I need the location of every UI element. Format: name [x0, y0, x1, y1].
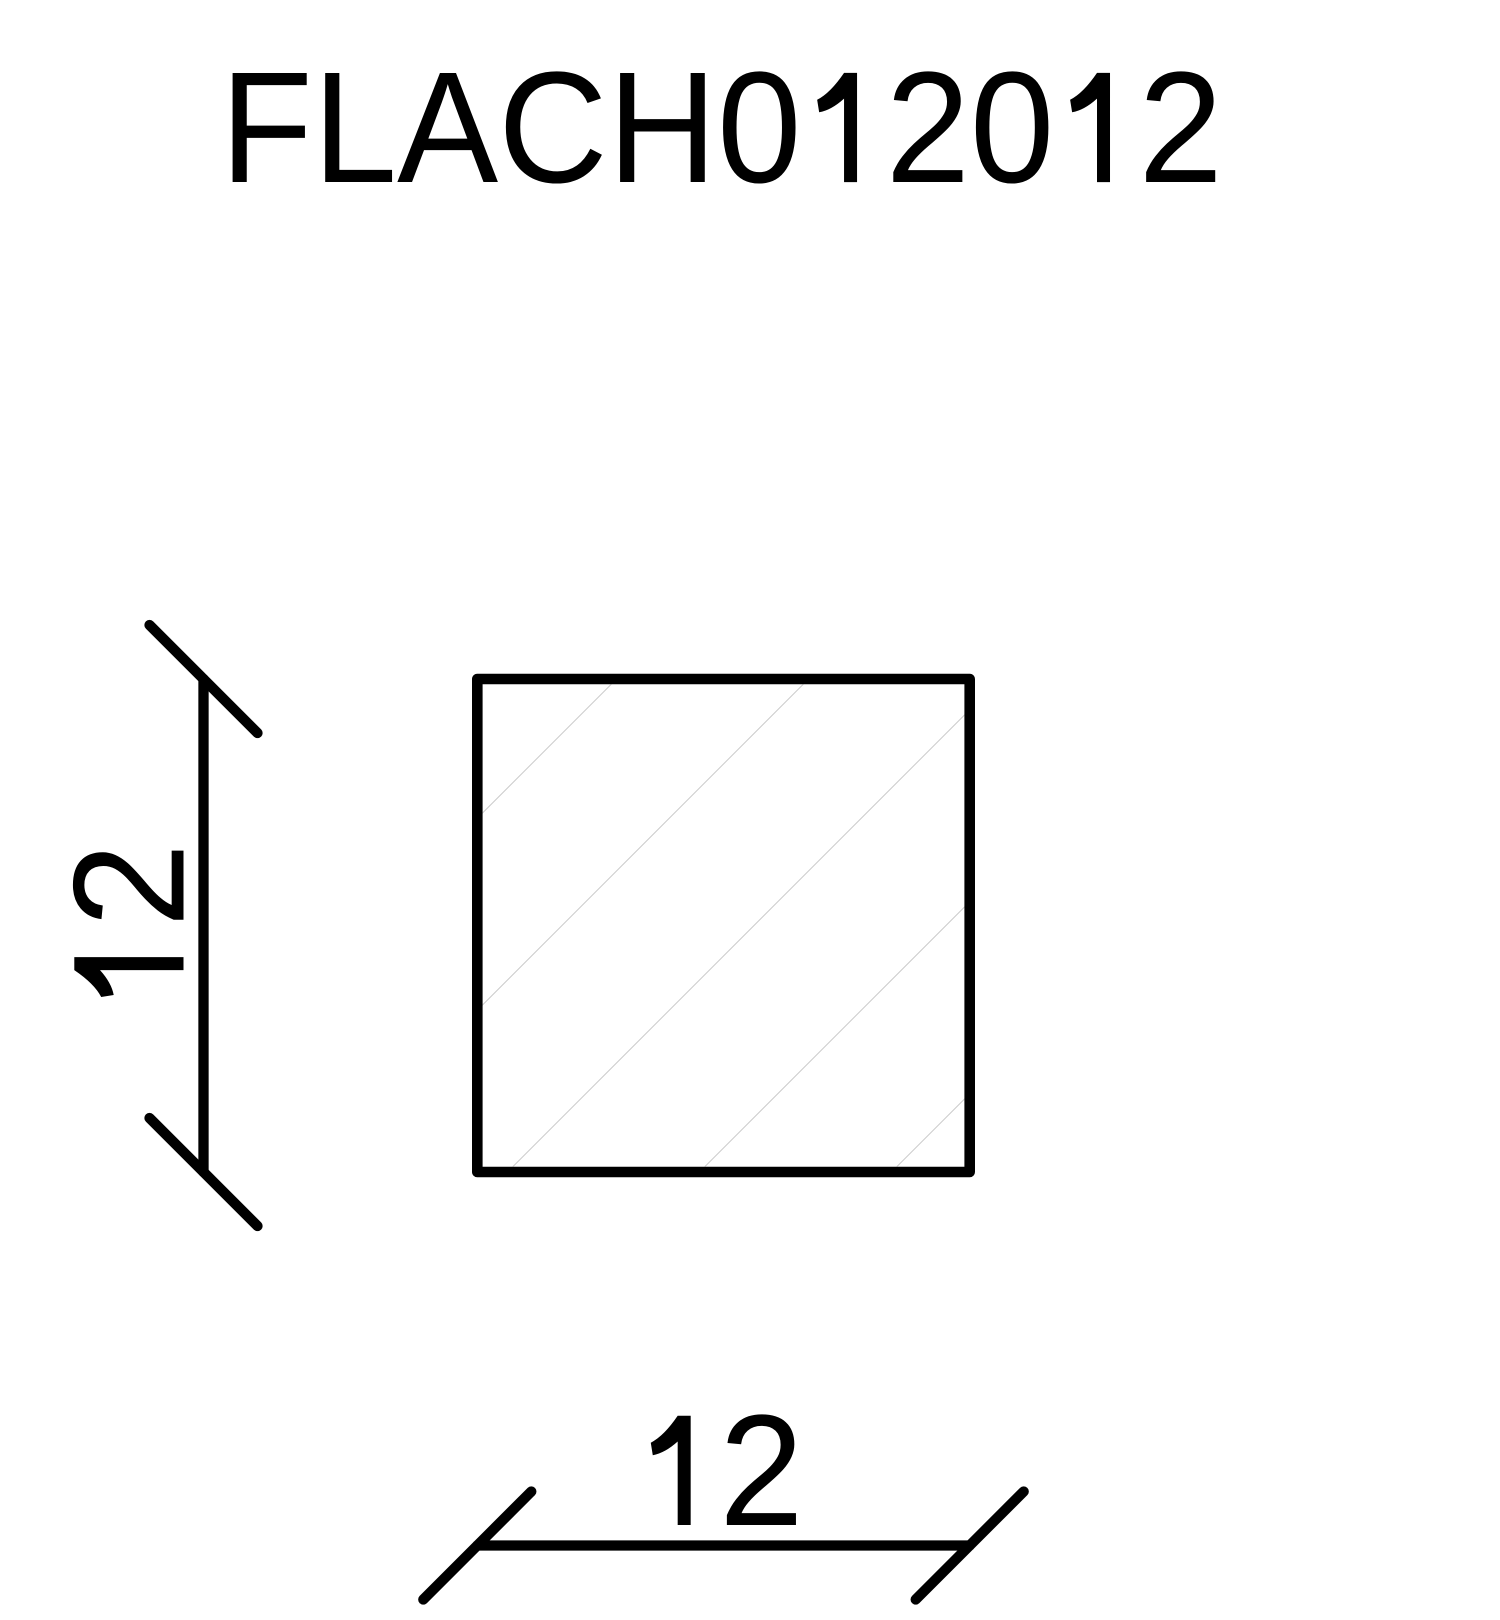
svg-text:FLACH0 20 2: FLACH0 20 2: [220, 39, 1223, 216]
svg-text:2: 2: [40, 843, 217, 1012]
svg-text:2: 2: [635, 1382, 804, 1559]
